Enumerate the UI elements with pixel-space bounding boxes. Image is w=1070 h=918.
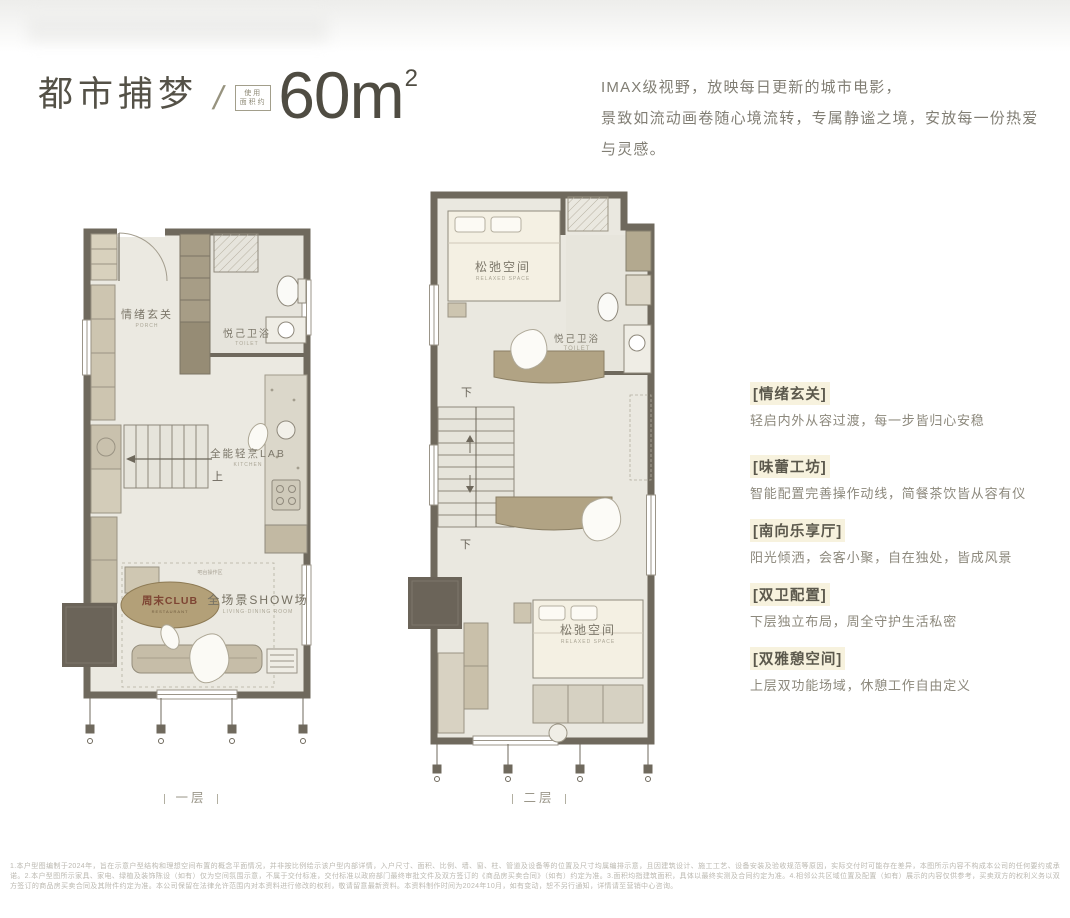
room-label-show-en: LIVING·DINING ROOM xyxy=(196,609,320,615)
floor2-exterior-unit xyxy=(408,577,462,629)
feature-item: [南向乐享厅] 阳光倾洒，会客小聚，自在独处，皆成风景 xyxy=(750,519,1050,567)
caption-bracket xyxy=(217,794,218,804)
floor1-pillars xyxy=(86,698,307,744)
feature-title: [情绪玄关] xyxy=(750,382,830,405)
floorplan-poster: 都市捕梦 / 使用 面积约 60m2 IMAX级视野，放映每日更新的城市电影， … xyxy=(0,0,1070,918)
bar-note-label: 吧台操作区 xyxy=(178,569,242,576)
room-label-relax-bottom: 松弛空间 RELAXED SPACE xyxy=(533,621,643,645)
feature-desc: 智能配置完善操作动线，简餐茶饮皆从容有仪 xyxy=(750,485,1050,503)
floor1-caption: 一层 xyxy=(62,787,320,806)
room-label-kitchen-en: KITCHEN xyxy=(187,462,309,468)
feature-item: [双雅憩空间] 上层双功能场域，休憩工作自由定义 xyxy=(750,647,1050,695)
room-label-porch-cn: 情绪玄关 xyxy=(92,306,202,322)
legal-disclaimer: 1.本户型图编制于2024年，旨在示意户型结构和理想空间布置的概念平面情况，并非… xyxy=(10,862,1060,893)
room-label-toilet-f1: 悦己卫浴 TOILET xyxy=(192,325,302,347)
room-label-relax-top-cn: 松弛空间 xyxy=(448,258,558,275)
area-note-box: 使用 面积约 xyxy=(235,85,271,111)
floor1-wardrobe-column xyxy=(180,234,210,374)
area-superscript: 2 xyxy=(405,65,417,92)
area-note-line2: 面积约 xyxy=(237,98,269,107)
feature-item: [情绪玄关] 轻启内外从容过渡，每一步皆归心安稳 xyxy=(750,382,1050,430)
area-number: 60m xyxy=(278,58,403,132)
floor2-pillars xyxy=(433,744,652,782)
floor1-caption-text: 一层 xyxy=(175,791,206,805)
feature-list: [情绪玄关] 轻启内外从容过渡，每一步皆归心安稳 [味蕾工坊] 智能配置完善操作… xyxy=(750,382,1050,711)
caption-bracket xyxy=(512,794,513,804)
feature-desc: 轻启内外从容过渡，每一步皆归心安稳 xyxy=(750,412,1050,430)
room-label-toilet-f2-cn: 悦己卫浴 xyxy=(522,331,632,345)
stairs-down-label-b: 下 xyxy=(460,536,471,552)
room-label-show: 全场景SHOW场 LIVING·DINING ROOM xyxy=(196,591,320,615)
room-label-porch-en: PORCH xyxy=(92,323,202,329)
caption-bracket xyxy=(565,794,566,804)
room-label-relax-bottom-cn: 松弛空间 xyxy=(533,621,643,638)
tagline-line2: 景致如流动画卷随心境流转，专属静谧之境，安放每一份热爱与灵感。 xyxy=(601,103,1046,165)
feature-desc: 下层独立布局，周全守护生活私密 xyxy=(750,613,1050,631)
title-slash: / xyxy=(210,79,227,117)
area-value: 60m2 xyxy=(278,66,416,124)
page-title: 都市捕梦 xyxy=(38,66,198,124)
room-label-relax-top: 松弛空间 RELAXED SPACE xyxy=(448,258,558,282)
watermark-smudge xyxy=(28,16,328,42)
feature-desc: 上层双功能场域，休憩工作自由定义 xyxy=(750,677,1050,695)
feature-title: [双卫配置] xyxy=(750,583,830,606)
floor2-caption: 二层 xyxy=(408,787,670,806)
stairs-up-label: 上 xyxy=(212,468,223,484)
room-label-toilet-f1-cn: 悦己卫浴 xyxy=(192,325,302,340)
header: 都市捕梦 / 使用 面积约 60m2 xyxy=(38,66,416,124)
room-label-porch: 情绪玄关 PORCH xyxy=(92,306,202,329)
feature-desc: 阳光倾洒，会客小聚，自在独处，皆成风景 xyxy=(750,549,1050,567)
floor1-exterior-unit xyxy=(62,603,117,667)
stairs-down-label-a: 下 xyxy=(461,384,472,400)
room-label-show-cn: 全场景SHOW场 xyxy=(196,591,320,608)
feature-title: [南向乐享厅] xyxy=(750,519,845,542)
room-label-relax-bottom-en: RELAXED SPACE xyxy=(533,639,643,645)
room-label-relax-top-en: RELAXED SPACE xyxy=(448,276,558,282)
feature-title: [味蕾工坊] xyxy=(750,455,830,478)
room-label-kitchen: 全能轻烹LAB KITCHEN xyxy=(187,446,309,468)
feature-item: [双卫配置] 下层独立布局，周全守护生活私密 xyxy=(750,583,1050,631)
room-label-toilet-f1-en: TOILET xyxy=(192,341,302,347)
room-label-kitchen-cn: 全能轻烹LAB xyxy=(187,446,309,461)
feature-title: [双雅憩空间] xyxy=(750,647,845,670)
feature-item: [味蕾工坊] 智能配置完善操作动线，简餐茶饮皆从容有仪 xyxy=(750,455,1050,503)
area-note-line1: 使用 xyxy=(237,89,269,98)
room-label-toilet-f2-en: TOILET xyxy=(522,346,632,352)
room-label-toilet-f2: 悦己卫浴 TOILET xyxy=(522,331,632,352)
tagline-line1: IMAX级视野，放映每日更新的城市电影， xyxy=(601,72,1046,103)
floor2-caption-text: 二层 xyxy=(523,791,554,805)
tagline: IMAX级视野，放映每日更新的城市电影， 景致如流动画卷随心境流转，专属静谧之境… xyxy=(601,72,1046,165)
caption-bracket xyxy=(164,794,165,804)
